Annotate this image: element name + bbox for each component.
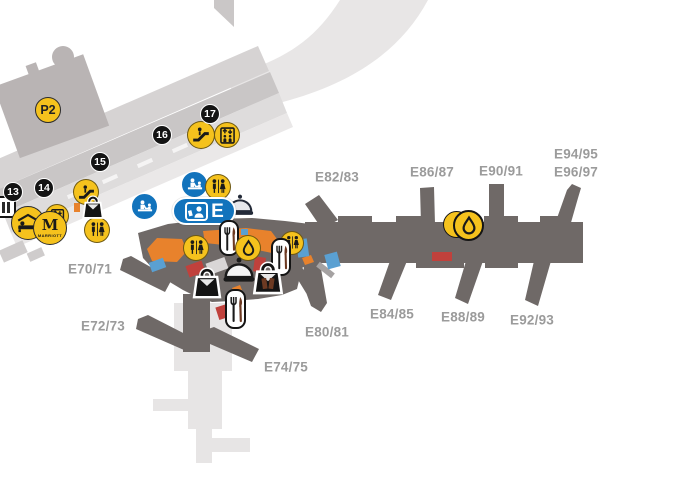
parking-label: P2 <box>40 103 55 117</box>
water-drop-icon-2[interactable] <box>453 210 484 241</box>
access-road-corner <box>214 0 234 27</box>
shopping-bag-icon-3[interactable] <box>251 258 285 296</box>
map-base-layer <box>0 0 680 493</box>
map-marker-17[interactable]: 17 <box>200 104 220 124</box>
baby-care-glyph <box>135 197 155 217</box>
drop-glyph <box>457 214 481 238</box>
restroom-glyph <box>87 220 108 241</box>
map-marker-16[interactable]: 16 <box>152 125 172 145</box>
baby-care-icon[interactable] <box>131 193 158 220</box>
gate-label-e90-91: E90/91 <box>479 164 523 179</box>
shopping-bag-icon-1[interactable] <box>81 193 105 220</box>
fork-knife-glyph <box>228 293 244 325</box>
restroom-glyph <box>186 238 207 259</box>
parking-icon[interactable]: P2 <box>35 97 61 123</box>
gate-label-e72-73: E72/73 <box>81 319 125 334</box>
shopping-bag-icon-2[interactable] <box>191 264 223 300</box>
bag-glyph <box>191 264 223 300</box>
gate-label-e88-89: E88/89 <box>441 310 485 325</box>
gate-label-e92-93: E92/93 <box>510 313 554 328</box>
passport-control-icon <box>184 201 209 222</box>
gate-label-e80-81: E80/81 <box>305 325 349 340</box>
elevator-glyph <box>217 125 238 146</box>
marriott-icon[interactable]: M MARRIOTT <box>33 211 67 245</box>
gate-label-e74-75: E74/75 <box>264 360 308 375</box>
gate-label-e82-83: E82/83 <box>315 170 359 185</box>
gate-label-e96-97: E96/97 <box>554 165 598 180</box>
escalator-icon[interactable] <box>187 121 215 149</box>
marriott-logo: M MARRIOTT <box>38 218 62 238</box>
map-marker-13[interactable]: 13 <box>3 182 23 202</box>
restroom-icon-1[interactable] <box>84 217 110 243</box>
gate-label-e86-87: E86/87 <box>410 165 454 180</box>
airport-terminal-map: E70/71 E72/73 E74/75 E80/81 E82/83 E84/8… <box>0 0 680 493</box>
attendant-glyph <box>185 175 205 195</box>
escalator-glyph <box>190 124 212 146</box>
map-marker-15[interactable]: 15 <box>90 152 110 172</box>
gate-label-e94-95: E94/95 <box>554 147 598 162</box>
gate-label-e84-85: E84/85 <box>370 307 414 322</box>
gate-zone-letter: E <box>211 202 224 221</box>
gate-label-e70-71: E70/71 <box>68 262 112 277</box>
elevator-icon[interactable] <box>214 122 240 148</box>
map-marker-14[interactable]: 14 <box>34 178 54 198</box>
fork-knife-icon-3[interactable] <box>225 289 246 329</box>
restroom-icon-3[interactable] <box>183 235 209 261</box>
attendant-desk-icon[interactable] <box>181 171 208 198</box>
bag-glyph <box>251 258 285 296</box>
bag-glyph <box>81 193 105 220</box>
